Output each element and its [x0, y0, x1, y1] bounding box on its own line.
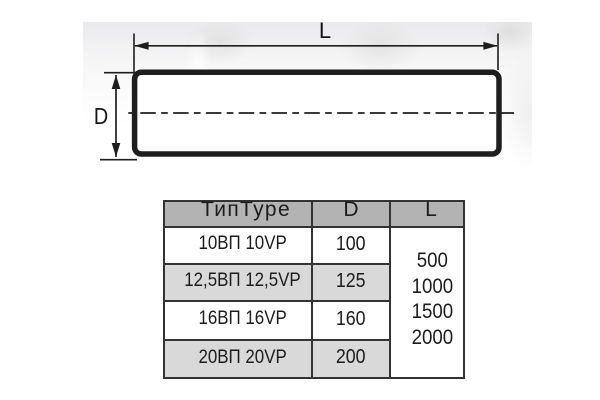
svg-text:D: D — [94, 102, 108, 129]
svg-text:L: L — [319, 18, 331, 43]
